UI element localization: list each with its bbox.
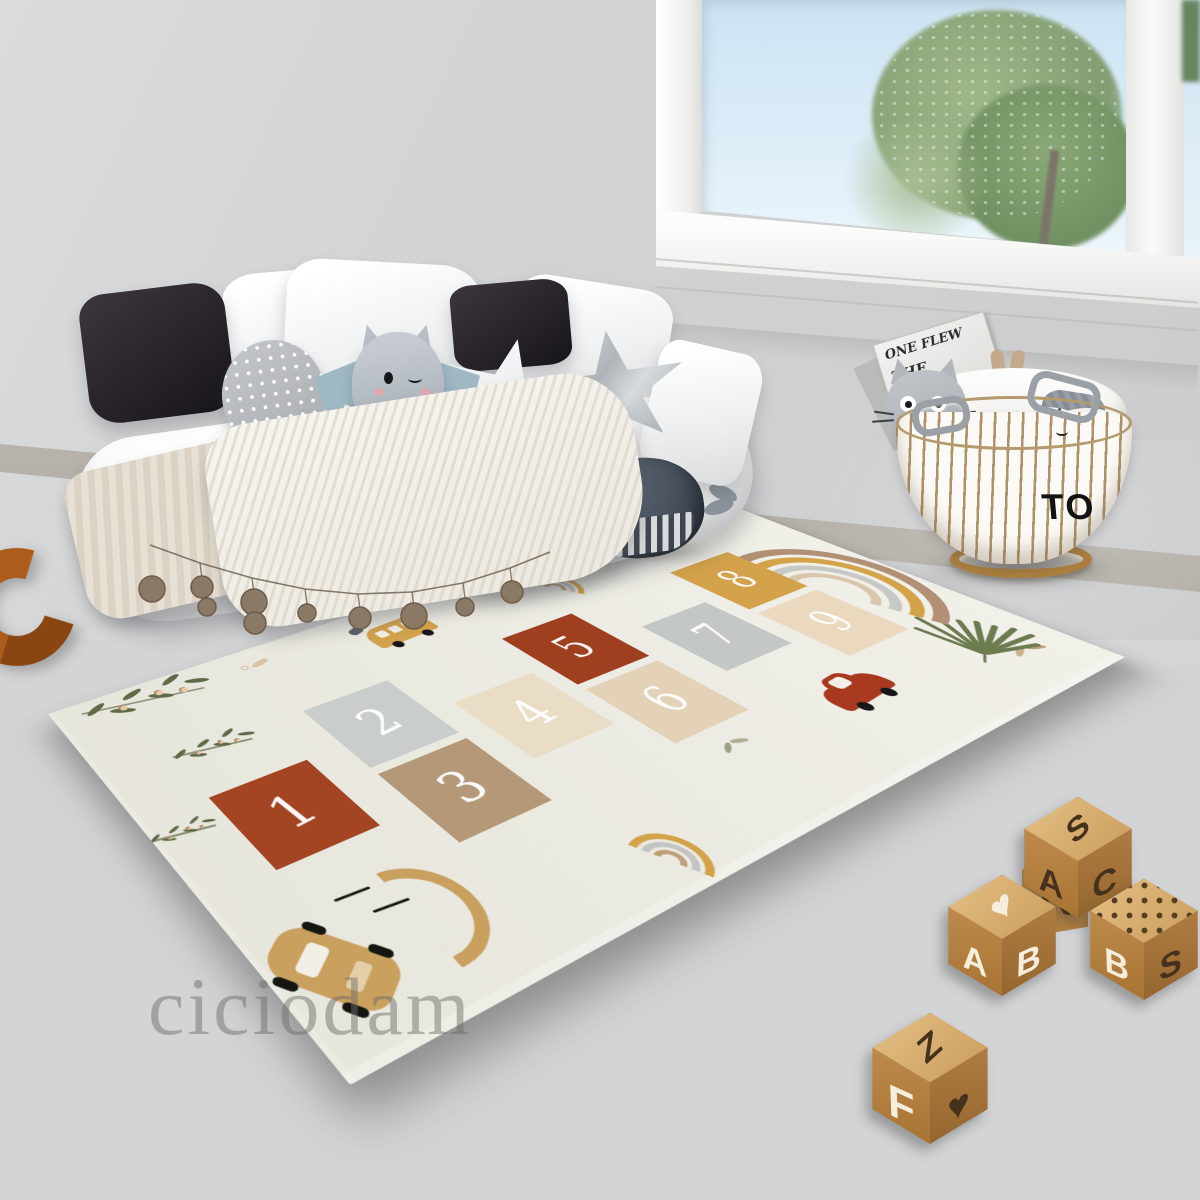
square-number: 5 (539, 630, 611, 665)
block-letter: S (1145, 926, 1196, 1004)
block-letter: A (950, 922, 1001, 1000)
wood-block-heart: ♥ A B (946, 872, 1058, 996)
cat-pupil (905, 401, 912, 408)
watermark: ciciodam (148, 960, 473, 1054)
block-letter: B (1003, 922, 1054, 1000)
red-car-wheel (854, 700, 878, 712)
square-number: 3 (422, 762, 505, 814)
square-number: 4 (495, 692, 573, 735)
square-number: 2 (343, 700, 417, 744)
olive-leaf (196, 738, 211, 748)
beige-leaf (250, 657, 270, 668)
square-number: 6 (626, 679, 706, 720)
hopscotch-square-6: 6 (586, 660, 749, 743)
whale-tail-lobe (703, 496, 736, 519)
black-pillow-left (77, 280, 238, 427)
motif-stroke (333, 886, 371, 902)
nursery-playroom-photo: 123456789 (0, 0, 1200, 1200)
square-number: 7 (679, 618, 753, 652)
square-number: 9 (795, 605, 871, 638)
olive-leaf (237, 731, 255, 736)
basket-label: TO (1040, 486, 1097, 528)
topview-car-wheel (300, 920, 328, 936)
square-number: 1 (253, 785, 333, 840)
bat-eye (384, 372, 393, 384)
wood-block-bs: B S (1088, 876, 1200, 1000)
topview-car-wheel (367, 943, 396, 960)
heart-icon: ♥ (931, 1065, 986, 1149)
palm-stem (983, 651, 986, 663)
window-mullion (1126, 0, 1184, 268)
bat-wink-eye (408, 374, 422, 383)
block-letter: B (1092, 926, 1143, 1004)
olive-leaf (120, 688, 143, 702)
bat-cheek (374, 388, 384, 396)
sprout-leaf (728, 737, 751, 744)
block-letter: F (874, 1065, 929, 1149)
tree-foliage-right (1182, 0, 1200, 82)
olive-leaf (184, 677, 210, 684)
red-car-wheel (877, 686, 900, 698)
sprout-leaf (724, 742, 731, 754)
ring-charm (239, 665, 250, 671)
wood-block-fz: Z F ♥ (870, 1010, 990, 1144)
